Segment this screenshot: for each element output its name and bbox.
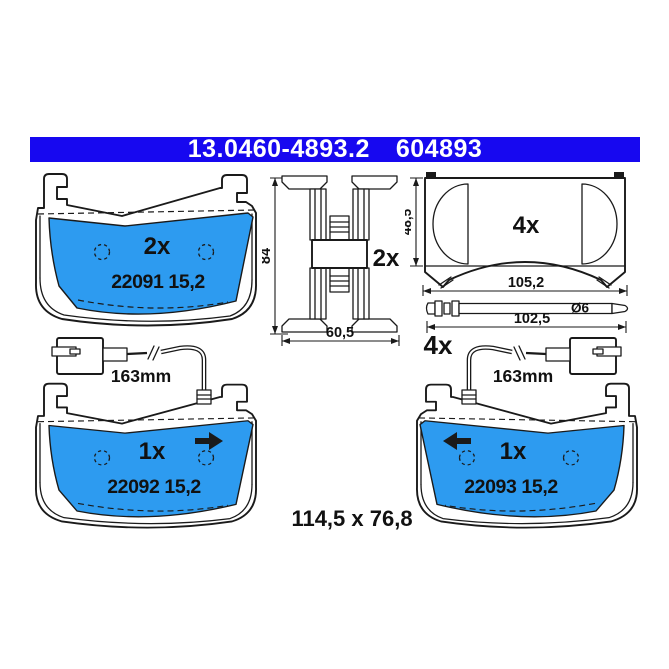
dim-height: 84: [262, 178, 288, 334]
brake-pad: [417, 384, 637, 528]
header-bar: 13.0460-4893.2 604893: [30, 137, 640, 162]
sensor-clip: [462, 390, 476, 404]
dim-label-clip-width: 60,5: [326, 325, 354, 341]
pad-22091-drawing: 2x 22091 15,2: [28, 166, 268, 336]
quantity-label: 2x: [144, 233, 171, 260]
pad-size-label: 114,5 x 76,8: [262, 506, 442, 532]
part-number: 13.0460-4893.2: [188, 137, 370, 162]
quantity-label: 1x: [139, 438, 166, 465]
sensor-length-label: 163mm: [493, 366, 553, 386]
shim-drawing: 48,5 4x 105,2: [405, 168, 650, 297]
friction-material: [49, 213, 253, 314]
dim-label-pin-diameter: Ø6: [571, 301, 590, 316]
ate-brake-pad-technical-drawing: 13.0460-4893.2 604893 2x 22091 15,2 84: [0, 0, 669, 669]
dim-label-clip-height: 84: [262, 248, 274, 264]
sensor-length-label: 163mm: [111, 366, 171, 386]
dim-height: 48,5: [405, 178, 423, 266]
dim-label-shim-width: 105,2: [508, 275, 544, 291]
friction-material: [420, 421, 624, 517]
pad-22092-drawing: 163mm 1x 22092 15,2: [28, 332, 273, 537]
quantity-label: 1x: [500, 438, 527, 465]
wva-number-label: 22093 15,2: [464, 476, 558, 498]
quantity-label: 2x: [373, 245, 400, 272]
wva-number-label: 22091 15,2: [111, 271, 205, 293]
sensor-clip: [197, 390, 211, 404]
dim-label-pin-length: 102,5: [514, 311, 550, 327]
reference-number: 604893: [396, 137, 482, 162]
mounting-tab: [614, 172, 624, 179]
dim-label-shim-height: 48,5: [405, 208, 414, 235]
wva-number-label: 22092 15,2: [107, 476, 201, 498]
clip-drawing: 84 2x 60,5: [262, 168, 410, 346]
mounting-tab: [426, 172, 436, 179]
friction-material: [49, 421, 253, 517]
quantity-label: 4x: [513, 212, 540, 239]
